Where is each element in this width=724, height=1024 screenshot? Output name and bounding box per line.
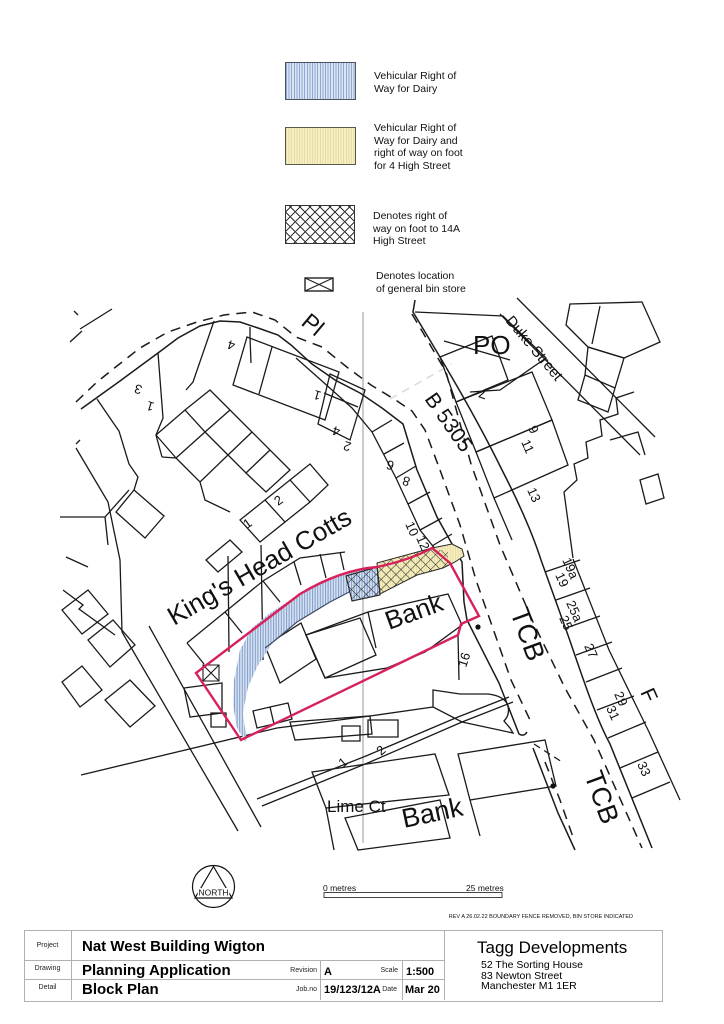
svg-text:Lime Ct: Lime Ct bbox=[327, 797, 386, 816]
svg-text:F: F bbox=[635, 685, 661, 706]
svg-text:13: 13 bbox=[524, 485, 544, 504]
svg-text:2: 2 bbox=[271, 492, 286, 508]
svg-text:NORTH: NORTH bbox=[198, 888, 228, 898]
svg-text:Bank: Bank bbox=[399, 792, 466, 834]
svg-text:27: 27 bbox=[581, 641, 601, 660]
svg-text:11: 11 bbox=[518, 437, 537, 455]
svg-text:25 metres: 25 metres bbox=[466, 883, 504, 893]
svg-text:1: 1 bbox=[240, 515, 255, 531]
svg-text:King's Head Cotts: King's Head Cotts bbox=[162, 502, 357, 632]
svg-text:TCB: TCB bbox=[504, 604, 551, 665]
svg-text:Duke Street: Duke Street bbox=[502, 313, 566, 385]
svg-text:Pl: Pl bbox=[297, 308, 329, 341]
svg-text:REV A 26.02.22 BOUNDARY FENC: REV A 26.02.22 BOUNDARY FENCE REMOVED, B… bbox=[449, 914, 633, 920]
svg-text:TCB: TCB bbox=[578, 767, 625, 828]
svg-text:4: 4 bbox=[226, 337, 237, 353]
svg-text:Bank: Bank bbox=[381, 587, 448, 636]
svg-text:33: 33 bbox=[634, 759, 654, 778]
svg-text:1: 1 bbox=[312, 387, 323, 403]
svg-text:B 5305: B 5305 bbox=[420, 389, 477, 457]
svg-text:0 metres: 0 metres bbox=[323, 883, 356, 893]
svg-text:9: 9 bbox=[525, 423, 542, 436]
svg-text:2: 2 bbox=[342, 438, 353, 454]
svg-text:16: 16 bbox=[455, 651, 474, 669]
svg-text:1: 1 bbox=[145, 398, 156, 414]
svg-text:3: 3 bbox=[133, 381, 144, 397]
svg-text:PO: PO bbox=[473, 330, 511, 360]
svg-text:10: 10 bbox=[402, 519, 422, 538]
svg-text:2: 2 bbox=[373, 742, 388, 758]
svg-text:8: 8 bbox=[401, 473, 412, 489]
